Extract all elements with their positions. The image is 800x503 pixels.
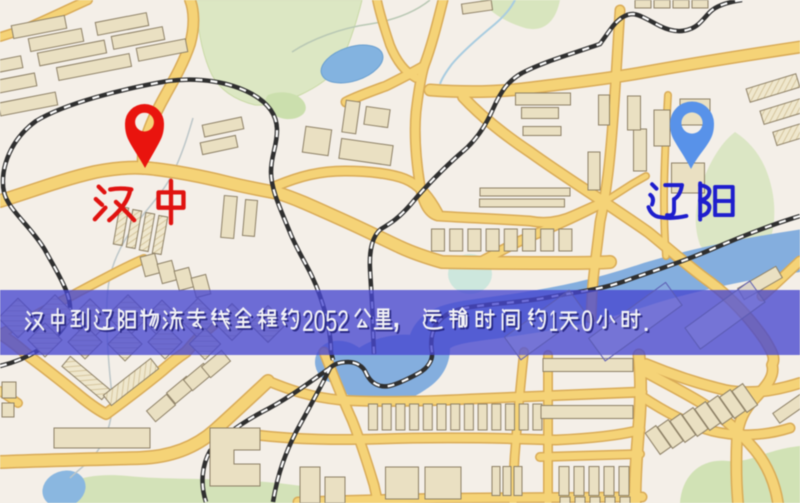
svg-text:0: 0 xyxy=(581,305,593,338)
svg-text:,: , xyxy=(391,294,402,336)
svg-text:2052: 2052 xyxy=(302,305,349,338)
svg-text:1: 1 xyxy=(549,305,558,338)
svg-text:.: . xyxy=(642,305,650,338)
